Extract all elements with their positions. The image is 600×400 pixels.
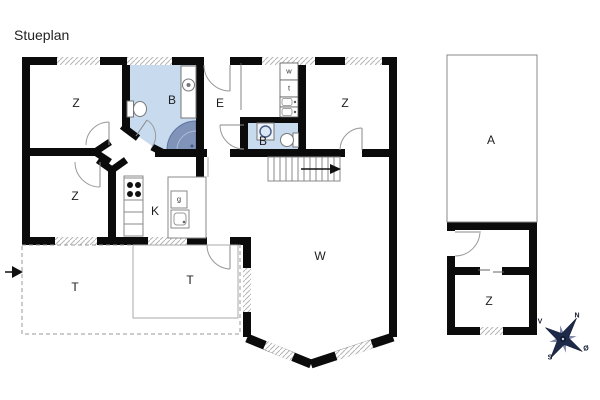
vanity-counter bbox=[181, 66, 196, 118]
appliance-label-washer: w bbox=[286, 67, 291, 75]
room-label-bathroom-small: B bbox=[259, 135, 267, 147]
terraces bbox=[22, 245, 240, 334]
room-label-terrace-right: T bbox=[186, 274, 193, 286]
room-label-kitchen: K bbox=[151, 205, 159, 217]
annex-door-arc bbox=[455, 231, 480, 256]
terrace-left-outline bbox=[22, 245, 240, 334]
compass-label-south: S bbox=[548, 355, 553, 362]
bedroom-bottom-left-door-arc bbox=[75, 162, 100, 187]
kitchen-fixtures bbox=[124, 176, 206, 238]
compass-label-east: Ø bbox=[583, 346, 588, 353]
toilet-icon bbox=[127, 101, 147, 117]
bedroom-top-right-door-arc bbox=[340, 128, 362, 150]
appliance-label-fridge: g bbox=[177, 195, 181, 203]
stairs bbox=[268, 157, 341, 181]
room-label-bedroom-bottom-left: Z bbox=[71, 190, 78, 202]
room-label-bathroom-main: B bbox=[168, 94, 176, 106]
compass-label-north: N bbox=[574, 313, 579, 320]
double-sink-fixture bbox=[280, 97, 298, 117]
room-label-bedroom-top-right: Z bbox=[341, 97, 348, 109]
terrace-door-arc bbox=[207, 245, 230, 269]
room-label-bedroom-top-left: Z bbox=[72, 97, 79, 109]
floor-plan-page: Stueplan Z B E Z B Z K W T T A Z w t g N… bbox=[0, 0, 600, 400]
room-label-annex-carport: A bbox=[487, 134, 495, 146]
compass-rose bbox=[533, 307, 596, 371]
entrance-arrow bbox=[5, 266, 23, 278]
stove-fixture bbox=[124, 178, 143, 200]
compass-label-west: V bbox=[538, 319, 543, 326]
appliance-label-dryer: t bbox=[288, 84, 290, 92]
entry-door-arc bbox=[204, 65, 230, 91]
toilet-small-icon bbox=[281, 133, 299, 147]
room-label-living-room: W bbox=[314, 250, 325, 262]
room-label-terrace-left: T bbox=[71, 281, 78, 293]
page-title: Stueplan bbox=[14, 27, 69, 43]
floor-plan-drawing bbox=[0, 0, 600, 400]
room-label-annex-bedroom: Z bbox=[485, 295, 492, 307]
room-label-entry: E bbox=[216, 97, 224, 109]
